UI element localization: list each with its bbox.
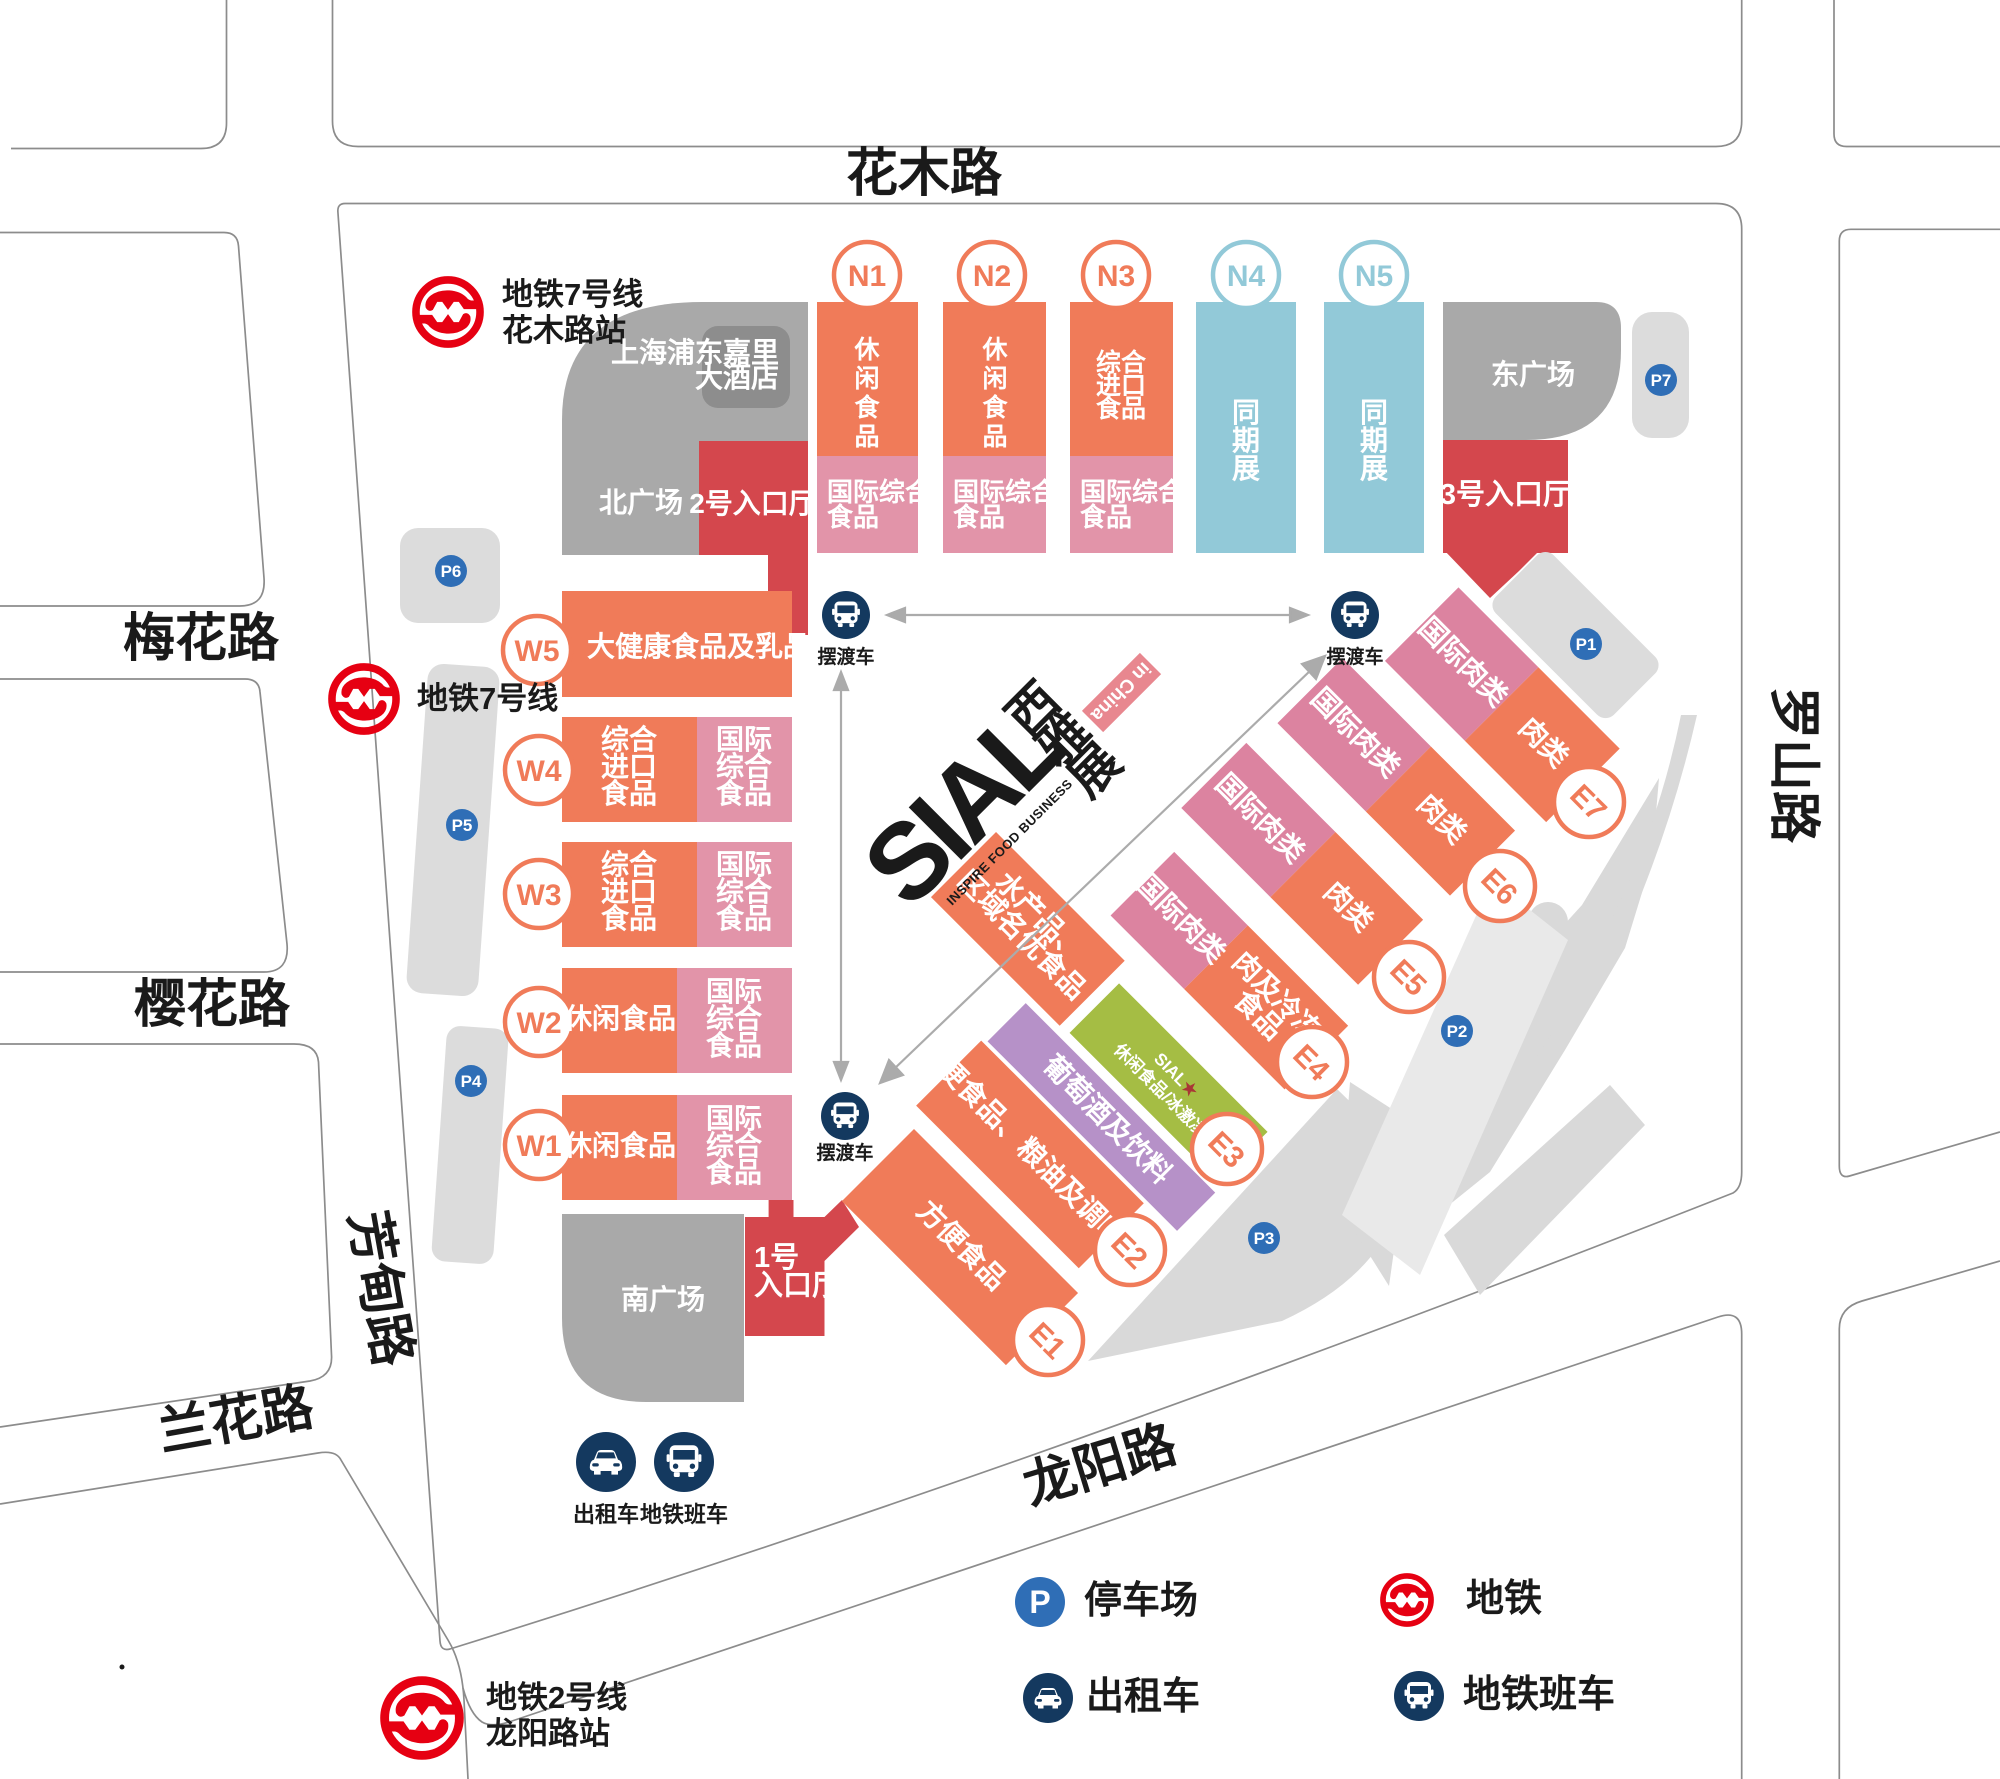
svg-text:P2: P2 (1447, 1022, 1468, 1041)
svg-text:食品: 食品 (706, 1029, 762, 1061)
svg-text:停车场: 停车场 (1084, 1580, 1198, 1622)
svg-text:休: 休 (853, 336, 880, 364)
svg-text:P6: P6 (441, 562, 462, 581)
svg-text:W5: W5 (515, 635, 560, 668)
svg-text:N3: N3 (1097, 260, 1135, 293)
svg-text:P4: P4 (461, 1072, 482, 1091)
svg-text:地铁班车: 地铁班车 (640, 1502, 728, 1527)
svg-text:展: 展 (1360, 453, 1388, 484)
svg-text:N4: N4 (1227, 260, 1266, 293)
svg-text:地铁7号线: 地铁7号线 (502, 277, 643, 312)
svg-text:芳甸路: 芳甸路 (338, 1207, 422, 1372)
svg-text:食品: 食品 (601, 902, 657, 934)
svg-text:地铁班车: 地铁班车 (1463, 1674, 1615, 1716)
svg-text:W1: W1 (517, 1130, 562, 1163)
svg-text:N5: N5 (1355, 260, 1393, 293)
svg-text:梅花路: 梅花路 (123, 610, 280, 668)
svg-text:P7: P7 (1651, 371, 1672, 390)
svg-text:食品: 食品 (716, 902, 772, 934)
svg-text:龙阳路站: 龙阳路站 (486, 1716, 610, 1751)
svg-text:休: 休 (981, 336, 1008, 364)
svg-text:W2: W2 (517, 1007, 562, 1040)
svg-text:食品: 食品 (706, 1156, 762, 1188)
svg-text:北广场: 北广场 (599, 487, 683, 518)
svg-text:入口厅: 入口厅 (754, 1270, 841, 1302)
svg-text:食品: 食品 (1096, 394, 1146, 423)
svg-text:休闲食品: 休闲食品 (563, 1129, 676, 1161)
svg-text:品: 品 (854, 423, 879, 451)
svg-text:地铁7号线: 地铁7号线 (417, 681, 558, 716)
svg-text:闲: 闲 (982, 365, 1007, 393)
svg-text:地铁: 地铁 (1466, 1578, 1542, 1620)
svg-text:食品: 食品 (953, 502, 1005, 532)
svg-text:N1: N1 (848, 260, 886, 293)
svg-text:同: 同 (1360, 397, 1388, 428)
svg-text:食品: 食品 (827, 502, 879, 532)
svg-text:东广场: 东广场 (1491, 358, 1575, 390)
svg-text:出租车: 出租车 (573, 1502, 639, 1527)
svg-text:食品: 食品 (716, 777, 772, 809)
svg-text:摆渡车: 摆渡车 (817, 645, 874, 668)
svg-text:花木路站: 花木路站 (502, 313, 626, 348)
svg-text:品: 品 (982, 423, 1007, 451)
svg-text:期: 期 (1232, 425, 1260, 456)
svg-text:大酒店: 大酒店 (695, 362, 779, 393)
svg-text:展: 展 (1232, 453, 1260, 484)
svg-text:兰花路: 兰花路 (154, 1378, 319, 1462)
svg-text:大健康食品及乳品: 大健康食品及乳品 (587, 630, 811, 662)
svg-text:食品: 食品 (1080, 502, 1132, 532)
svg-text:同: 同 (1232, 397, 1260, 428)
svg-text:出租车: 出租车 (1086, 1676, 1200, 1718)
svg-text:食品: 食品 (601, 777, 657, 809)
svg-text:W3: W3 (517, 879, 562, 912)
svg-text:闲: 闲 (854, 365, 879, 393)
svg-text:食: 食 (854, 393, 880, 422)
svg-text:食: 食 (982, 393, 1008, 422)
svg-text:P1: P1 (1576, 635, 1597, 654)
svg-text:樱花路: 樱花路 (134, 976, 291, 1034)
svg-text:南广场: 南广场 (621, 1284, 705, 1315)
svg-text:摆渡车: 摆渡车 (1326, 645, 1383, 668)
svg-text:罗山路: 罗山路 (1764, 687, 1822, 844)
svg-text:花木路: 花木路 (846, 145, 1003, 203)
svg-text:地铁2号线: 地铁2号线 (486, 1680, 627, 1715)
svg-text:P: P (1029, 1584, 1050, 1620)
svg-text:N2: N2 (973, 260, 1011, 293)
svg-text:P3: P3 (1254, 1229, 1275, 1248)
svg-text:W4: W4 (517, 755, 562, 788)
svg-text:in China: in China (1086, 658, 1154, 726)
svg-text:P5: P5 (452, 816, 473, 835)
svg-text:2号入口厅: 2号入口厅 (689, 488, 817, 519)
svg-text:期: 期 (1360, 425, 1388, 456)
svg-text:3号入口厅: 3号入口厅 (1440, 479, 1572, 511)
svg-text:摆渡车: 摆渡车 (816, 1141, 873, 1164)
svg-text:休闲食品: 休闲食品 (563, 1002, 676, 1034)
